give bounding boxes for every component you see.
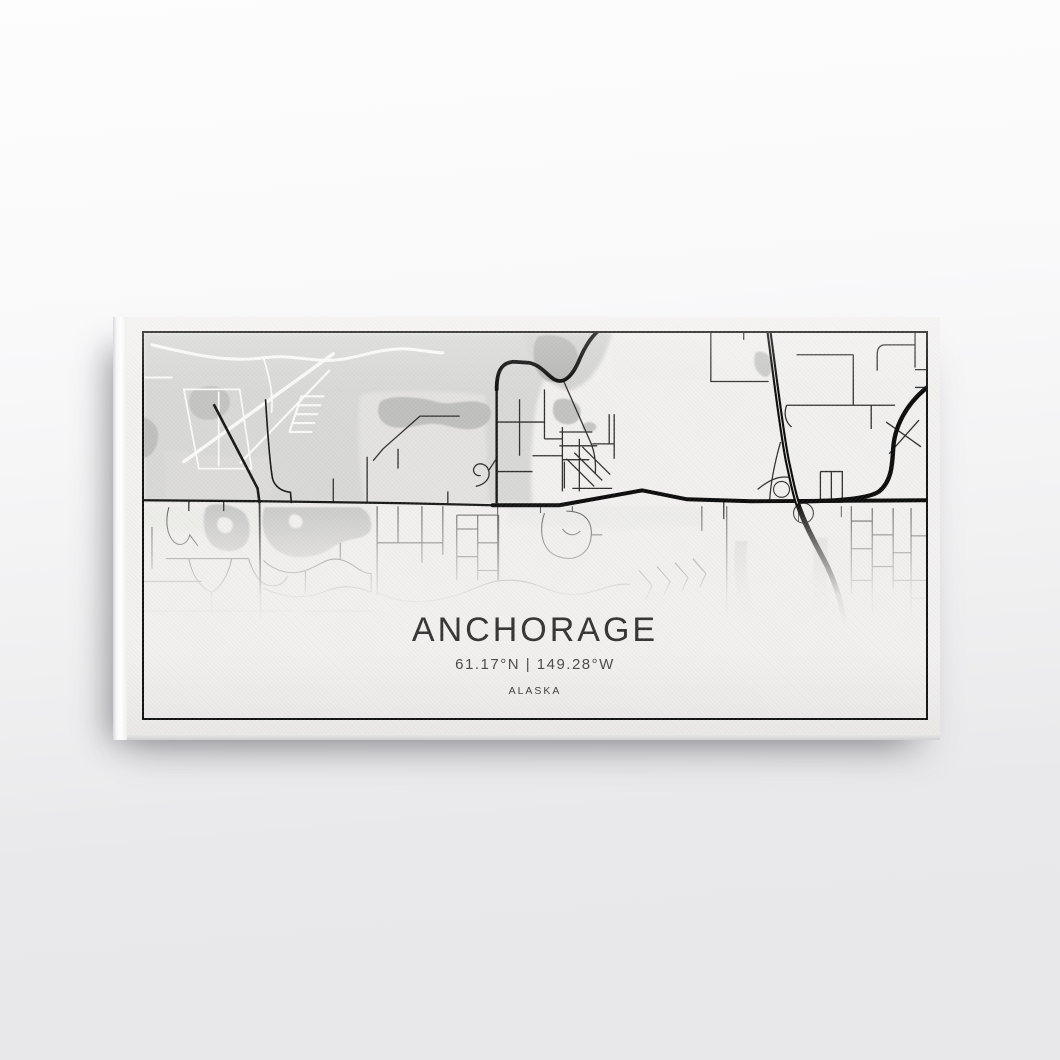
city-coordinates: 61.17°N | 149.28°W	[144, 657, 926, 672]
canvas-face: ANCHORAGE 61.17°N | 149.28°W ALASKA	[127, 317, 940, 734]
canvas-left-edge	[113, 317, 127, 740]
state-label: ALASKA	[144, 686, 926, 697]
canvas-bottom-edge	[127, 734, 940, 740]
city-title: ANCHORAGE	[144, 613, 926, 647]
canvas-print: ANCHORAGE 61.17°N | 149.28°W ALASKA	[113, 317, 940, 740]
map-frame-border: ANCHORAGE 61.17°N | 149.28°W ALASKA	[142, 331, 928, 720]
map-caption-block: ANCHORAGE 61.17°N | 149.28°W ALASKA	[144, 613, 926, 697]
product-photo-wall: ANCHORAGE 61.17°N | 149.28°W ALASKA	[0, 0, 1060, 1060]
